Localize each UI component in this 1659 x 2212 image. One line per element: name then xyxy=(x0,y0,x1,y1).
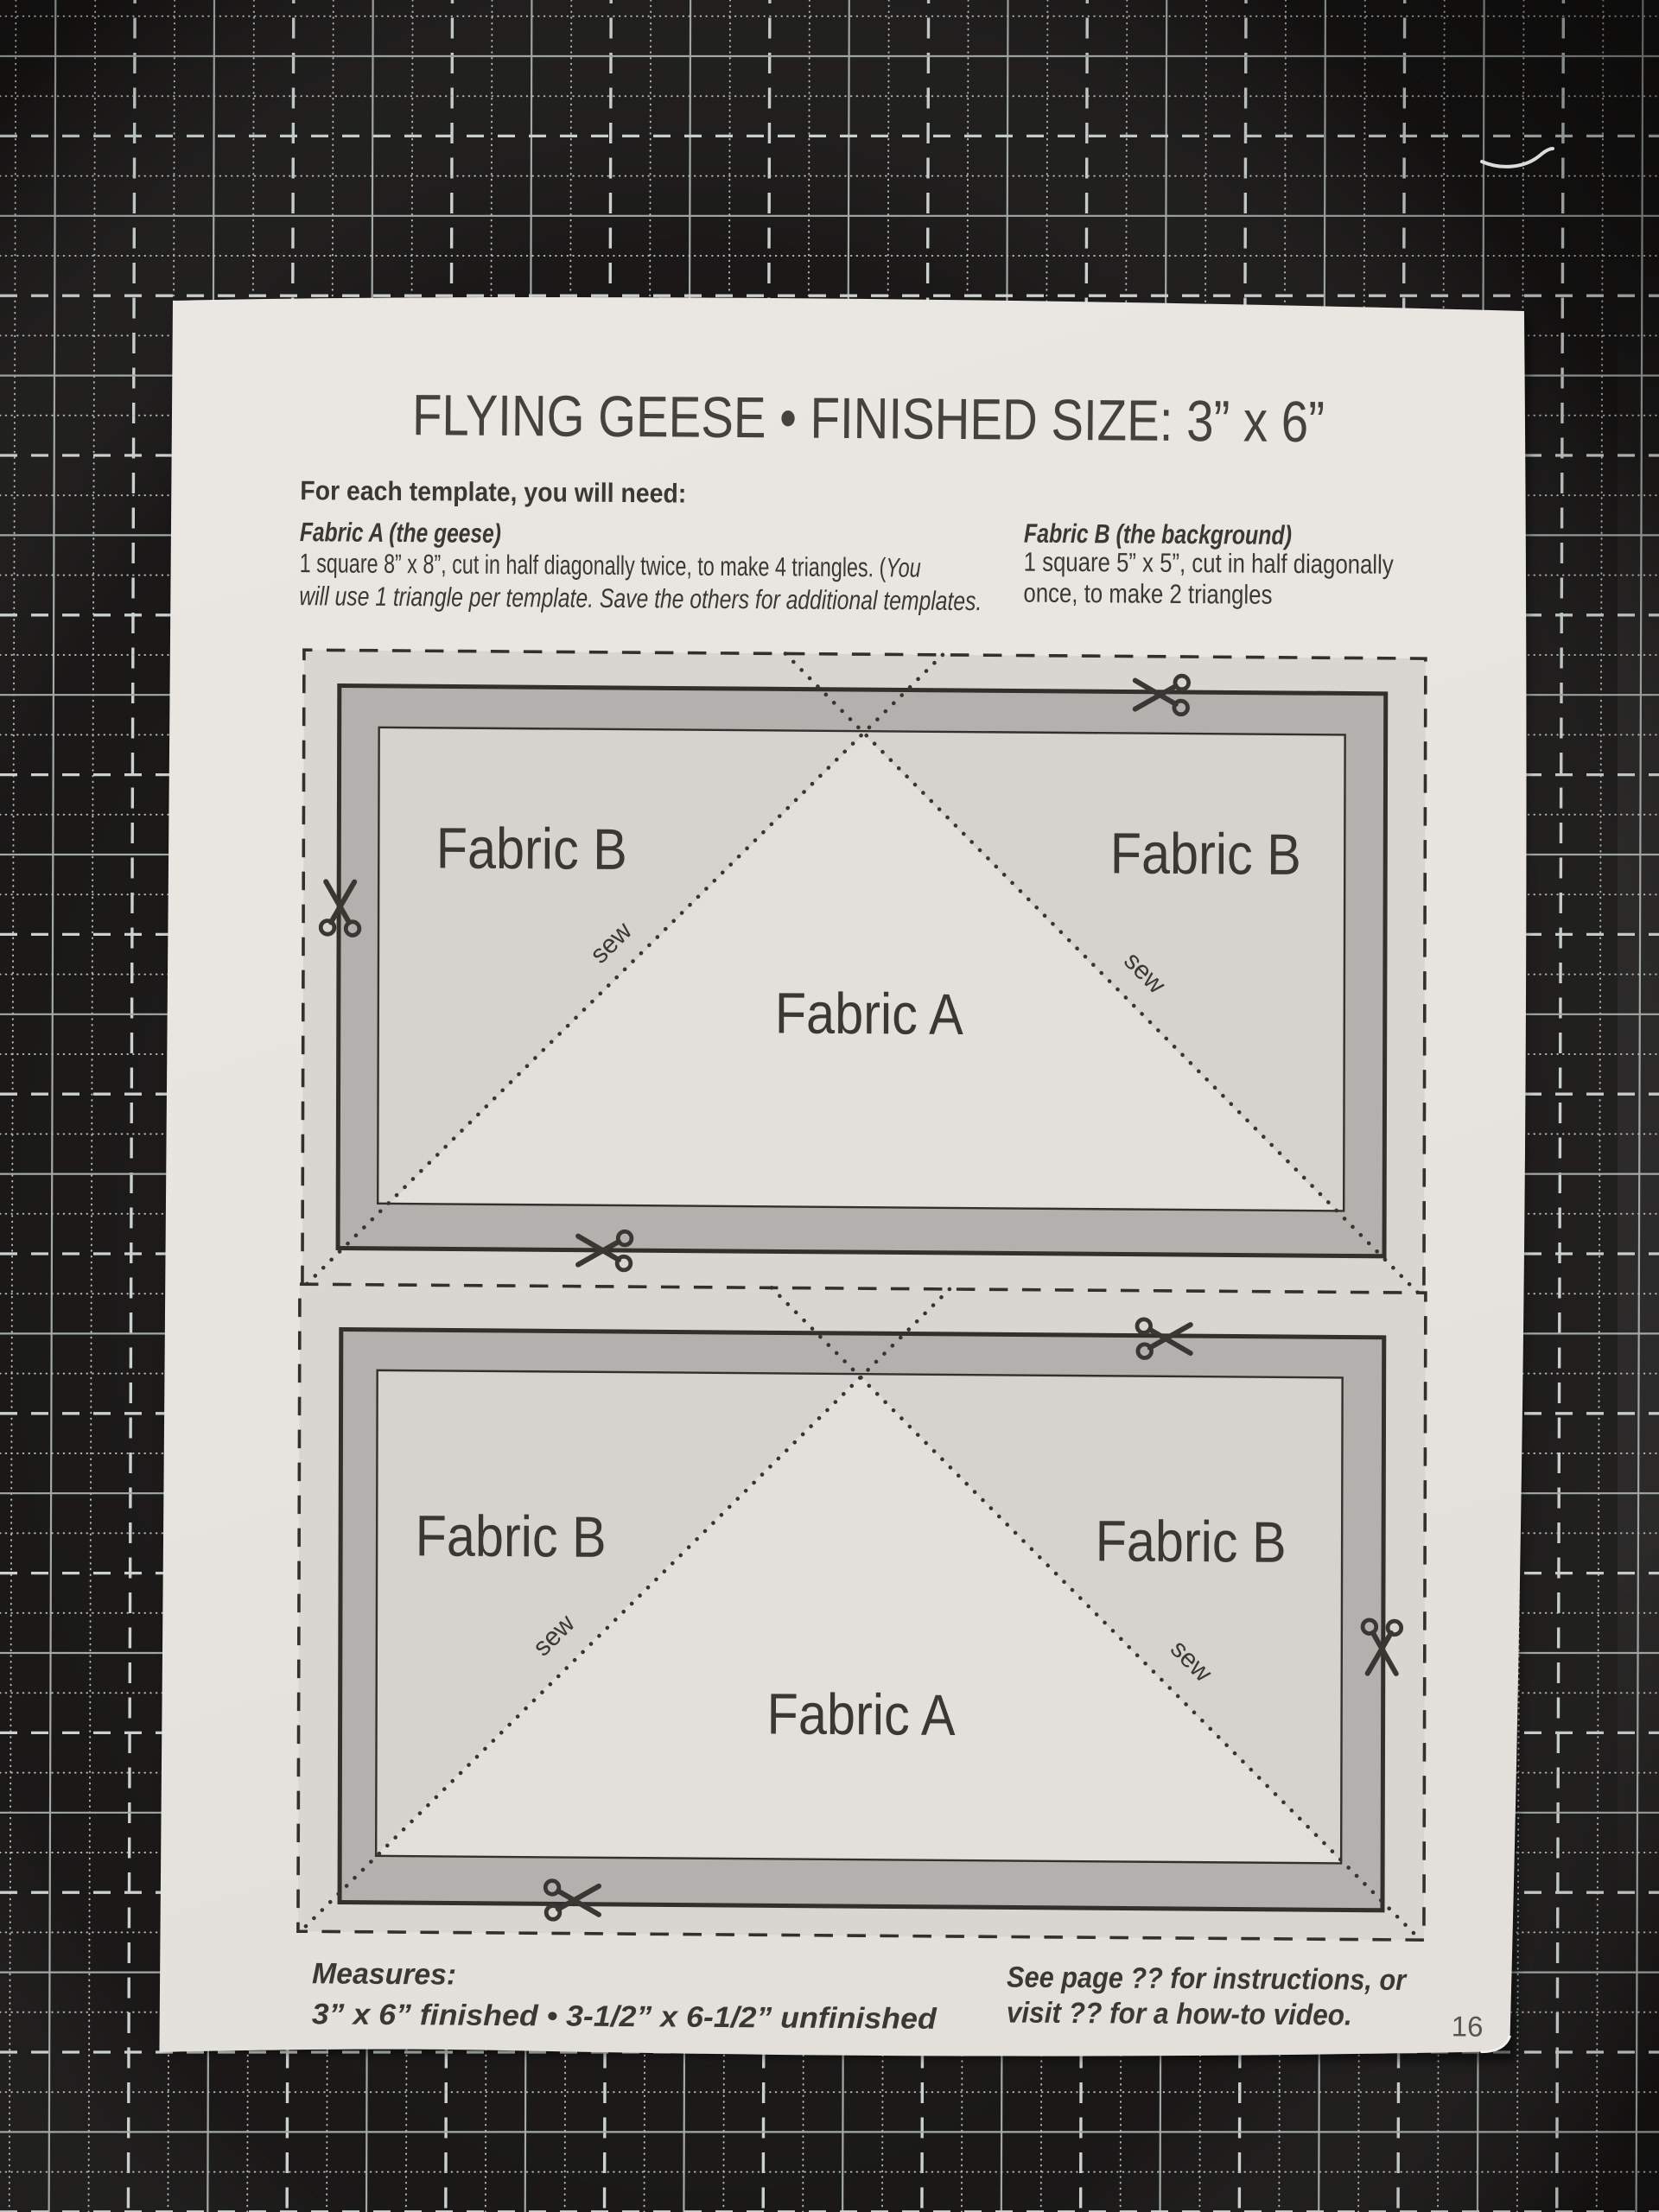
svg-text:Fabric B: Fabric B xyxy=(1096,1509,1287,1575)
svg-text:1 square 5” x 5”, cut in half: 1 square 5” x 5”, cut in half diagonally xyxy=(1024,547,1395,580)
svg-text:once, to make 2 triangles: once, to make 2 triangles xyxy=(1023,578,1272,610)
svg-text:Fabric B: Fabric B xyxy=(416,1503,607,1570)
svg-text:For each template, you will ne: For each template, you will need: xyxy=(300,475,686,508)
svg-text:Fabric A: Fabric A xyxy=(767,1681,956,1748)
svg-text:3” x 6” finished • 3-1/2” x: 3” x 6” finished • 3-1/2” x 6-1/2” unfin… xyxy=(312,1998,938,2036)
svg-text:will use 1 triangle per templa: will use 1 triangle per template. Save t… xyxy=(299,581,982,616)
svg-text:visit ?? for a how-to video.: visit ?? for a how-to video. xyxy=(1007,1996,1352,2031)
svg-text:FLYING GEESE • FINISHED SIZE:: FLYING GEESE • FINISHED SIZE: 3” x 6” xyxy=(412,383,1325,454)
svg-text:Fabric B: Fabric B xyxy=(436,816,627,882)
svg-text:16: 16 xyxy=(1452,2010,1484,2042)
svg-text:See page ?? for instructions,: See page ?? for instructions, or xyxy=(1007,1961,1408,1997)
svg-text:Fabric A (the geese): Fabric A (the geese) xyxy=(300,517,501,549)
svg-text:Measures:: Measures: xyxy=(312,1957,456,1991)
svg-text:Fabric A: Fabric A xyxy=(775,981,963,1047)
svg-text:1 square 8” x 8”, cut in half: 1 square 8” x 8”, cut in half diagonally… xyxy=(300,548,921,583)
svg-text:Fabric B: Fabric B xyxy=(1110,821,1301,887)
svg-text:Fabric B (the background): Fabric B (the background) xyxy=(1024,518,1292,550)
